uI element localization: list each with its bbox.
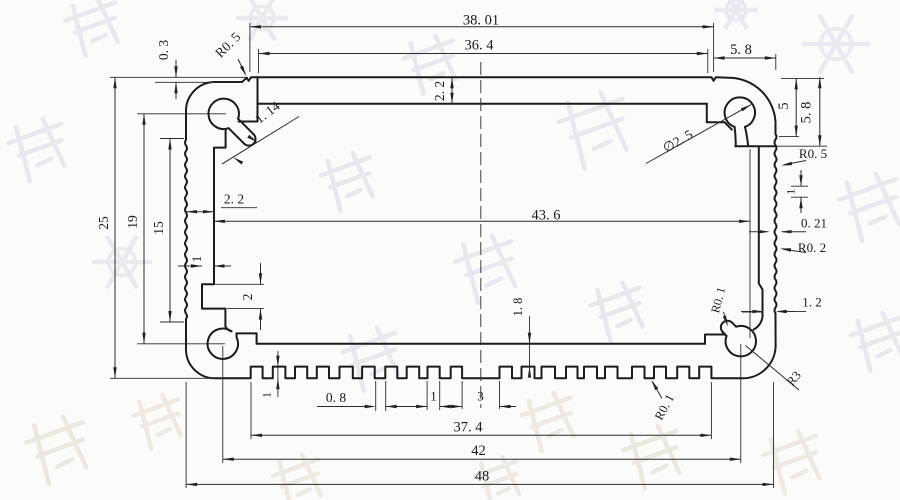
svg-text:19: 19	[125, 215, 140, 229]
svg-text:2. 2: 2. 2	[432, 81, 447, 101]
svg-text:1: 1	[190, 256, 204, 262]
svg-text:25: 25	[96, 216, 111, 230]
svg-text:0. 8: 0. 8	[326, 390, 347, 405]
svg-text:42: 42	[471, 443, 486, 459]
svg-text:1: 1	[430, 389, 437, 404]
svg-text:R0. 5: R0. 5	[799, 146, 827, 161]
svg-text:2. 2: 2. 2	[224, 192, 244, 207]
svg-text:48: 48	[475, 468, 490, 484]
svg-text:43. 6: 43. 6	[532, 207, 561, 223]
svg-text:0. 21: 0. 21	[801, 216, 827, 231]
svg-text:1. 2: 1. 2	[802, 295, 822, 310]
svg-text:38. 01: 38. 01	[463, 12, 499, 28]
svg-text:R0. 2: R0. 2	[798, 240, 826, 255]
svg-text:2: 2	[240, 294, 255, 301]
svg-text:1: 1	[260, 392, 274, 398]
svg-text:5. 8: 5. 8	[730, 42, 752, 58]
svg-text:15: 15	[151, 221, 166, 235]
svg-text:0. 3: 0. 3	[156, 40, 171, 61]
svg-text:1: 1	[784, 189, 798, 195]
svg-text:5. 8: 5. 8	[799, 102, 815, 124]
svg-text:36. 4: 36. 4	[465, 38, 495, 54]
svg-text:37. 4: 37. 4	[454, 419, 484, 435]
svg-text:5: 5	[776, 102, 792, 109]
svg-text:1. 8: 1. 8	[511, 298, 525, 317]
